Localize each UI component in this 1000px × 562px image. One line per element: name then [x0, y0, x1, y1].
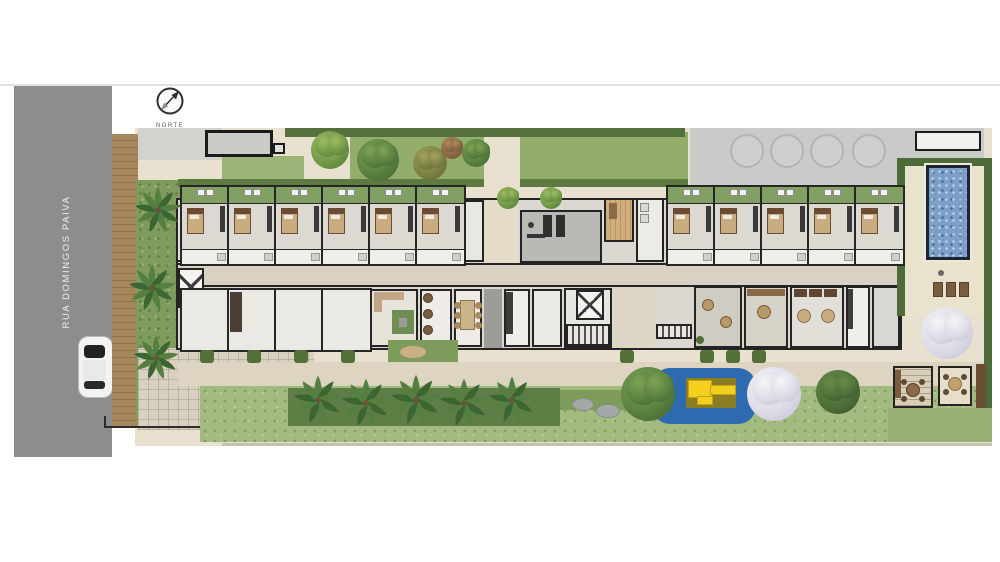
- bathroom-fixture: [703, 253, 712, 261]
- bathroom-fixture: [452, 253, 461, 261]
- bed: [187, 208, 204, 234]
- planter: [620, 350, 634, 363]
- unit-bathroom: [370, 249, 417, 264]
- water-tank: [730, 134, 764, 168]
- corridor: [178, 263, 900, 287]
- apartment-unit: [713, 185, 764, 266]
- party-sofa: [809, 289, 822, 297]
- bathroom-fixture: [311, 253, 320, 261]
- washer-box: [291, 189, 299, 196]
- salon-chair: [423, 325, 433, 335]
- bed-headboard: [282, 209, 297, 214]
- bed-pillow: [723, 215, 732, 219]
- palm-tree-icon: [131, 333, 181, 383]
- washer-box: [786, 189, 794, 196]
- lower-unit: [321, 288, 372, 352]
- planter: [294, 350, 308, 363]
- closet: [361, 206, 366, 232]
- dining-chair: [454, 322, 461, 329]
- car: [78, 336, 113, 398]
- lounge-table: [702, 299, 714, 311]
- unit-bathroom: [809, 249, 856, 264]
- pergola-table: [948, 377, 962, 391]
- bed-pillow: [331, 215, 340, 219]
- car-windshield: [84, 345, 105, 358]
- pergola-chair: [943, 374, 949, 380]
- washer-box: [432, 189, 440, 196]
- water-tank: [852, 134, 886, 168]
- unit-terrace: [809, 187, 856, 204]
- planter: [726, 350, 740, 363]
- unit-terrace: [417, 187, 464, 204]
- bed-headboard: [376, 209, 391, 214]
- tree-canopy: [451, 139, 463, 151]
- unit-bathroom: [276, 249, 323, 264]
- bed: [422, 208, 439, 234]
- bed: [281, 208, 298, 234]
- tree-canopy: [507, 189, 519, 201]
- unit-bathroom: [417, 249, 464, 264]
- tree-icon: [816, 368, 860, 412]
- street: RUA DOMINGOS PAIVA: [14, 85, 112, 457]
- bed: [375, 208, 392, 234]
- unit-bathroom: [715, 249, 762, 264]
- unit-terrace: [323, 187, 370, 204]
- lounge-b-table: [757, 305, 771, 319]
- lower-unit: [274, 288, 325, 352]
- unit-terrace: [668, 187, 715, 204]
- washer-box: [730, 189, 738, 196]
- palm-tree-icon: [339, 376, 393, 430]
- unit-bathroom: [668, 249, 715, 264]
- washer-box: [347, 189, 355, 196]
- washer-box: [824, 189, 832, 196]
- unit-terrace: [370, 187, 417, 204]
- apartment-unit: [760, 185, 811, 266]
- plant-pot: [696, 336, 704, 344]
- lobby: [614, 288, 654, 348]
- bathroom-fixture: [358, 253, 367, 261]
- unit-terrace: [182, 187, 229, 204]
- bed: [814, 208, 831, 234]
- closet: [220, 206, 225, 232]
- unit-bathroom: [182, 249, 229, 264]
- grass-corner: [888, 408, 992, 442]
- washer-box: [833, 189, 841, 196]
- garden-bench: [976, 364, 986, 408]
- site-plan-canvas: RUA DOMINGOS PAIVA NORTE: [0, 0, 1000, 562]
- washer-box: [253, 189, 261, 196]
- closet: [408, 206, 413, 232]
- unit-bathroom: [762, 249, 809, 264]
- apartment-unit: [321, 185, 372, 266]
- car-roof: [83, 360, 106, 380]
- street-name-label: RUA DOMINGOS PAIVA: [61, 182, 75, 342]
- tree-canopy: [375, 143, 398, 166]
- bathroom-fixture: [264, 253, 273, 261]
- play-structure: [710, 385, 736, 395]
- closet: [894, 206, 899, 232]
- party-table: [797, 309, 811, 323]
- lower-unit: [180, 288, 231, 352]
- tree-canopy: [474, 142, 489, 157]
- bar-counter: [848, 289, 853, 329]
- bed: [767, 208, 784, 234]
- closet: [314, 206, 319, 232]
- bed-pillow: [676, 215, 685, 219]
- unit-bathroom: [229, 249, 276, 264]
- pergola-chair: [961, 389, 967, 395]
- closet: [706, 206, 711, 232]
- dining-chair: [475, 322, 482, 329]
- bed-pillow: [770, 215, 779, 219]
- water-tank: [770, 134, 804, 168]
- bed-pillow: [817, 215, 826, 219]
- bed: [861, 208, 878, 234]
- pergola-table: [906, 383, 920, 397]
- tree-canopy: [644, 372, 674, 402]
- planter: [700, 350, 714, 363]
- closet: [455, 206, 460, 232]
- apartment-unit: [854, 185, 905, 266]
- bed: [673, 208, 690, 234]
- apartment-unit: [415, 185, 466, 266]
- salon-chair: [423, 309, 433, 319]
- washer-box: [338, 189, 346, 196]
- coffee-table: [399, 318, 407, 327]
- washer: [640, 203, 649, 212]
- washer-box: [394, 189, 402, 196]
- lounge-table: [720, 316, 732, 328]
- dining-chair: [454, 312, 461, 319]
- closet: [267, 206, 272, 232]
- car-rear-window: [84, 381, 105, 389]
- apartment-unit: [274, 185, 325, 266]
- washer-box: [197, 189, 205, 196]
- flowering-tree-icon: [747, 365, 801, 419]
- tree-icon: [540, 186, 562, 208]
- lawn-right: [520, 132, 688, 184]
- bathroom-fixture: [891, 253, 900, 261]
- wc-room: [872, 286, 900, 348]
- tree-canopy: [770, 372, 800, 402]
- gym-dumbbell-rack: [527, 234, 545, 238]
- kitchen-counter: [506, 292, 513, 334]
- unit-terrace: [762, 187, 809, 204]
- stone: [596, 404, 620, 418]
- washer-box: [683, 189, 691, 196]
- bed-pillow: [378, 215, 387, 219]
- planter: [752, 350, 766, 363]
- bed-headboard: [815, 209, 830, 214]
- water-tank: [810, 134, 844, 168]
- bed-headboard: [862, 209, 877, 214]
- pergola-chair: [901, 379, 907, 385]
- bathroom-fixture: [844, 253, 853, 261]
- tree-icon: [462, 138, 490, 166]
- pergola-chair: [901, 396, 907, 402]
- bed-pillow: [284, 215, 293, 219]
- washer: [640, 214, 649, 223]
- washer-box: [871, 189, 879, 196]
- planter: [247, 350, 261, 363]
- bed-pillow: [425, 215, 434, 219]
- washer-box: [244, 189, 252, 196]
- party-sofa: [794, 289, 807, 297]
- entry-curb: [104, 416, 204, 428]
- unit-bathroom: [856, 249, 903, 264]
- bed-headboard: [235, 209, 250, 214]
- palm-tree-icon: [437, 376, 491, 430]
- dining-table: [460, 300, 475, 330]
- apartment-unit: [807, 185, 858, 266]
- washer-box: [385, 189, 393, 196]
- apartment-unit: [666, 185, 717, 266]
- breezeway: [484, 200, 518, 263]
- bed: [720, 208, 737, 234]
- sauna-bench: [609, 203, 617, 219]
- pergola-chair: [961, 374, 967, 380]
- bed-headboard: [768, 209, 783, 214]
- kitchenette-counter: [230, 292, 242, 332]
- bed: [234, 208, 251, 234]
- palm-tree-icon: [388, 372, 444, 428]
- elevator-shaft: [576, 290, 604, 320]
- apartment-unit: [227, 185, 278, 266]
- bathroom-fixture: [405, 253, 414, 261]
- bed-headboard: [329, 209, 344, 214]
- gray-hall: [484, 289, 502, 348]
- play-structure: [697, 396, 713, 405]
- washer-box: [739, 189, 747, 196]
- bed-headboard: [721, 209, 736, 214]
- bed-pillow: [864, 215, 873, 219]
- dining-chair: [454, 302, 461, 309]
- gym-ball: [528, 222, 534, 228]
- planter: [341, 350, 355, 363]
- tree-canopy: [944, 312, 973, 341]
- palm-tree-icon: [132, 184, 184, 236]
- pool-side-table: [938, 270, 944, 276]
- lounge-b-sofa: [747, 289, 785, 296]
- unit-terrace: [856, 187, 903, 204]
- stairwell: [566, 324, 610, 346]
- dining-chair: [475, 302, 482, 309]
- utility-pad-tab: [273, 143, 285, 154]
- bathroom-fixture: [217, 253, 226, 261]
- utility-pad: [205, 130, 273, 157]
- bathroom-fixture: [797, 253, 806, 261]
- unit-terrace: [229, 187, 276, 204]
- north-arrow-icon: [152, 86, 188, 120]
- washer-box: [692, 189, 700, 196]
- washer-box: [777, 189, 785, 196]
- bed-headboard: [423, 209, 438, 214]
- party-table: [821, 309, 835, 323]
- tree-icon: [621, 365, 675, 419]
- pergola-chair: [943, 389, 949, 395]
- pergola-bench: [895, 370, 901, 398]
- bed-headboard: [674, 209, 689, 214]
- multi-room: [532, 289, 562, 347]
- stone: [572, 398, 594, 411]
- bed: [328, 208, 345, 234]
- apartment-unit: [180, 185, 231, 266]
- tree-icon: [497, 186, 519, 208]
- pool-lounger: [946, 282, 956, 297]
- bed-headboard: [188, 209, 203, 214]
- tree-canopy: [550, 189, 562, 201]
- party-sofa: [824, 289, 837, 297]
- closet: [847, 206, 852, 232]
- dining-chair: [475, 312, 482, 319]
- palm-tree-icon: [291, 373, 345, 427]
- pergola-chair: [919, 379, 925, 385]
- gym-treadmill: [556, 215, 565, 237]
- swimming-pool: [926, 165, 970, 260]
- bed-pillow: [237, 215, 246, 219]
- bathroom-fixture: [750, 253, 759, 261]
- flowering-tree-icon: [921, 305, 973, 357]
- washer-box: [441, 189, 449, 196]
- lounge-sofa: [374, 292, 382, 312]
- washer-box: [206, 189, 214, 196]
- site-edge-shadow: [222, 443, 992, 446]
- tree-icon: [311, 129, 349, 167]
- tree-icon: [441, 136, 463, 158]
- pool-lounger: [933, 282, 943, 297]
- salon-chair: [423, 293, 433, 303]
- unit-bathroom: [323, 249, 370, 264]
- washer-box: [300, 189, 308, 196]
- bed-pillow: [190, 215, 199, 219]
- tree-icon: [357, 137, 399, 179]
- pergola-chair: [919, 396, 925, 402]
- closet: [753, 206, 758, 232]
- roof-box: [915, 131, 981, 151]
- planter: [200, 350, 214, 363]
- pool-lounger: [959, 282, 969, 297]
- unit-terrace: [715, 187, 762, 204]
- washer-box: [880, 189, 888, 196]
- apartment-unit: [368, 185, 419, 266]
- unit-terrace: [276, 187, 323, 204]
- stairwell: [656, 324, 692, 339]
- palm-tree-icon: [486, 374, 538, 426]
- closet: [800, 206, 805, 232]
- north-compass: NORTE: [148, 86, 192, 130]
- garden-rug: [400, 346, 426, 358]
- page-divider-line: [0, 84, 1000, 86]
- palm-tree-icon: [126, 262, 178, 314]
